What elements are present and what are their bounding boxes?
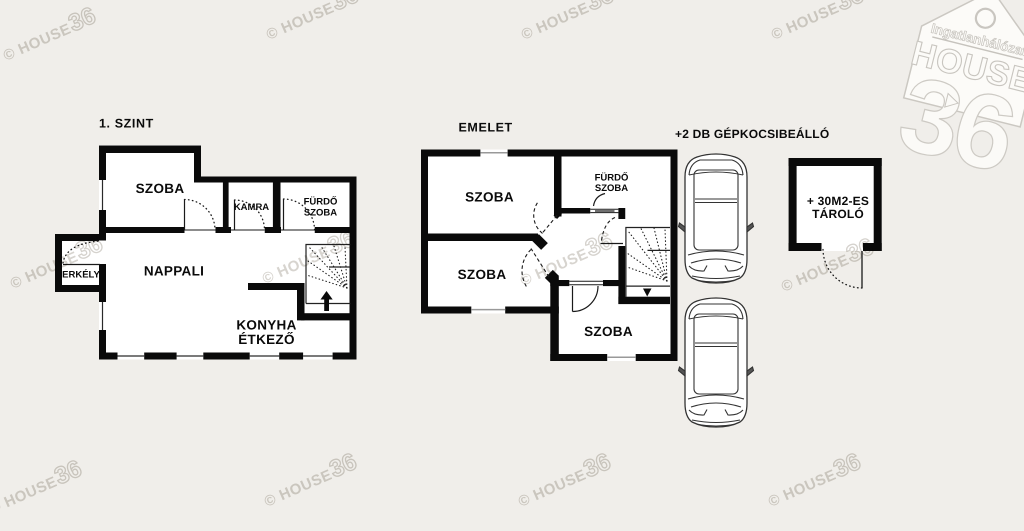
svg-text:ERKÉLY: ERKÉLY — [62, 269, 100, 281]
svg-text:+ 30M2-ES: + 30M2-ES — [807, 194, 869, 208]
svg-text:FÜRDŐ: FÜRDŐ — [304, 196, 338, 208]
svg-text:ÉTKEZŐ: ÉTKEZŐ — [238, 332, 295, 347]
svg-text:TÁROLÓ: TÁROLÓ — [812, 207, 864, 221]
svg-text:FÜRDŐ: FÜRDŐ — [595, 172, 629, 184]
svg-text:NAPPALI: NAPPALI — [144, 264, 204, 279]
svg-text:SZOBA: SZOBA — [465, 190, 514, 205]
svg-text:KAMRA: KAMRA — [234, 202, 269, 213]
svg-text:SZOBA: SZOBA — [584, 324, 633, 339]
svg-text:+2 DB GÉPKOCSIBEÁLLÓ: +2 DB GÉPKOCSIBEÁLLÓ — [675, 127, 829, 141]
svg-text:SZOBA: SZOBA — [595, 183, 628, 194]
svg-text:SZOBA: SZOBA — [304, 208, 337, 219]
svg-text:1. SZINT: 1. SZINT — [99, 117, 154, 131]
svg-text:SZOBA: SZOBA — [458, 267, 507, 282]
svg-text:EMELET: EMELET — [459, 121, 513, 135]
svg-text:KONYHA: KONYHA — [236, 318, 296, 333]
svg-text:SZOBA: SZOBA — [136, 181, 185, 196]
